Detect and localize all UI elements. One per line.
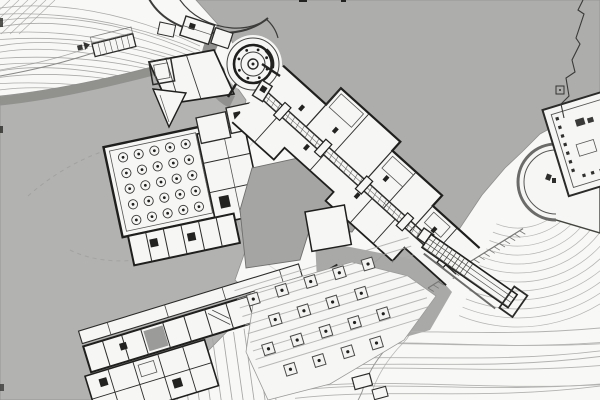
edge-mark — [299, 0, 307, 2]
edge-mark — [0, 126, 3, 133]
site-plan-drawing — [0, 0, 600, 400]
dark-room — [149, 238, 158, 247]
tower-column — [258, 76, 261, 79]
tower-center-dot — [252, 63, 255, 66]
edge-mark — [341, 0, 346, 2]
platform-mark — [552, 178, 556, 183]
tower-column — [247, 77, 250, 80]
tower-column — [238, 69, 241, 72]
edge-mark — [0, 18, 3, 27]
gate-annex — [158, 22, 176, 37]
dark-room — [187, 232, 196, 241]
north-room-a — [196, 112, 231, 144]
tower-column — [245, 49, 248, 52]
tower-column — [265, 56, 268, 59]
tower-column — [238, 58, 241, 61]
hill-track-dot — [559, 89, 561, 91]
tower-column — [257, 49, 260, 52]
edge-mark — [0, 384, 4, 391]
courtyard-notch-room — [305, 205, 351, 251]
